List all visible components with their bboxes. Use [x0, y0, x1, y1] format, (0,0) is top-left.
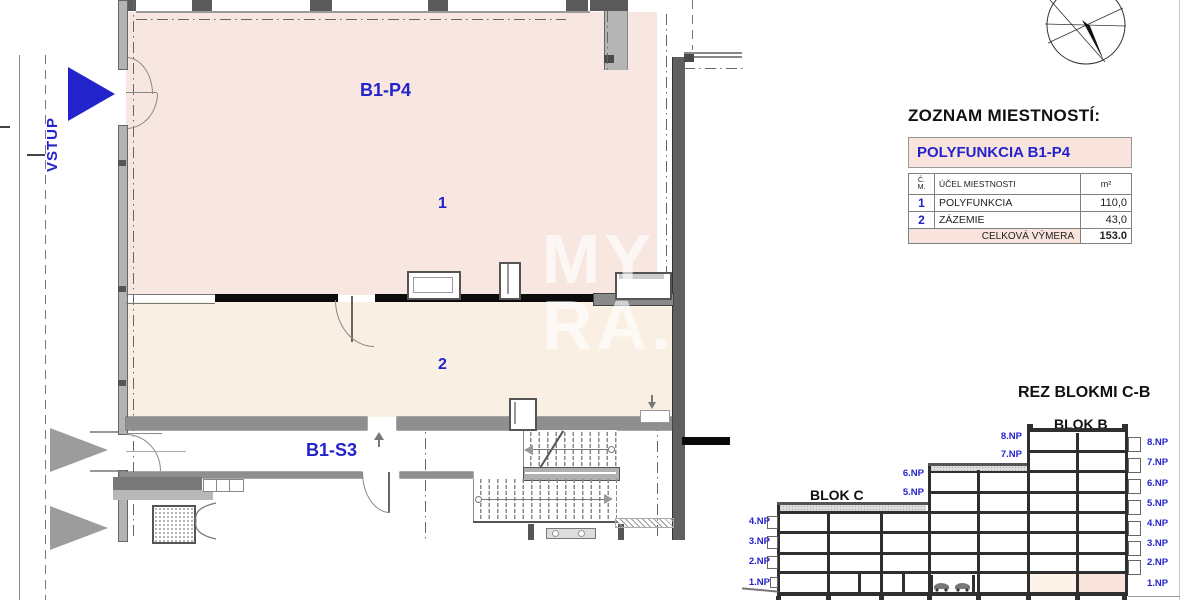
col-purpose: ÚČEL MIESTNOSTI: [935, 174, 1081, 195]
gray-arrow-icon: [50, 506, 108, 550]
highlight-unit-cell: [1079, 574, 1125, 592]
wall-stub: [604, 55, 614, 63]
direction-arrow-icon: [648, 402, 656, 409]
exterior-wall: [118, 125, 128, 435]
terrain-line: [1128, 596, 1180, 597]
entry-label: VSTUP: [44, 60, 61, 172]
footing: [826, 596, 831, 600]
stair-arrow-icon: [604, 494, 613, 504]
reference-tick: [27, 154, 45, 156]
row-purpose: POLYFUNKCIA: [935, 195, 1081, 212]
roof-blok-b: [1027, 428, 1128, 432]
floorplan-sheet: MY RA. VSTUP B1-P4: [0, 0, 1200, 600]
door-swing-arc: [362, 472, 390, 513]
stair-edge: [473, 521, 618, 523]
floor-label: 3.NP: [744, 536, 770, 547]
stair-landing-line: [525, 472, 616, 474]
table-total-row: CELKOVÁ VÝMERA 153.0: [909, 229, 1132, 244]
watermark-line2: RA.: [542, 292, 675, 358]
balcony: [1128, 458, 1141, 473]
floor-label: 2.NP: [1147, 557, 1168, 568]
axis-line: [136, 19, 566, 20]
room-list: ZOZNAM MIESTNOSTÍ: POLYFUNKCIA B1-P4 Č. …: [908, 106, 1132, 244]
footing: [1122, 596, 1127, 600]
wall-mass: [113, 477, 202, 490]
wall-stub: [684, 54, 694, 62]
footing: [927, 596, 932, 600]
interior-wall: [397, 417, 509, 430]
axis-line: [607, 11, 608, 70]
stair-walkline: [478, 499, 608, 500]
elevator-detail: [578, 530, 585, 537]
row-no: 2: [909, 212, 935, 229]
axis-line: [692, 0, 693, 50]
interior-wall: [215, 294, 338, 302]
balcony: [1128, 541, 1141, 556]
corner-wall: [590, 0, 628, 11]
footing: [879, 596, 884, 600]
floor-label: 8.NP: [996, 431, 1022, 442]
floor-label: 5.NP: [898, 487, 924, 498]
col-no-1: Č.: [910, 177, 933, 185]
floor-label: 5.NP: [1147, 498, 1168, 509]
col-area: m²: [1081, 174, 1132, 195]
glass-facade-line: [136, 11, 590, 13]
door-swing-arc: [126, 434, 161, 471]
door-frame-fixture: [499, 262, 521, 300]
column: [192, 0, 212, 11]
balcony: [1128, 437, 1141, 452]
footing: [1075, 596, 1080, 600]
direction-arrow-stem: [651, 395, 653, 402]
reference-line: [19, 55, 20, 600]
shaft-cell: [229, 479, 244, 492]
stair-walkline: [527, 449, 613, 450]
wall-tick: [118, 380, 126, 386]
floor-label: 7.NP: [1147, 457, 1168, 468]
floor-label: 1.NP: [744, 577, 770, 588]
blok-c-label: BLOK C: [810, 487, 864, 503]
row-no: 1: [909, 195, 935, 212]
room-unit-label: B1-P4: [360, 80, 411, 101]
watermark-line1: MY: [542, 226, 675, 292]
gray-arrow-icon: [50, 428, 108, 472]
room-1-number: 1: [438, 195, 447, 213]
section-column: [1076, 433, 1079, 596]
interior-wall: [400, 472, 473, 478]
column: [310, 0, 332, 11]
floor-label: 4.NP: [744, 516, 770, 527]
footing: [976, 596, 981, 600]
door-frame-leaf: [507, 264, 509, 294]
car-icon: [954, 581, 971, 592]
roof-band: [779, 505, 926, 511]
total-value: 153.0: [1081, 229, 1132, 244]
floor-label: 1.NP: [1147, 578, 1168, 589]
table-row: 1 POLYFUNKCIA 110,0: [909, 195, 1132, 212]
glazed-partition: [126, 294, 215, 304]
section-column: [880, 511, 883, 596]
wall-tick: [118, 286, 126, 292]
column: [566, 0, 588, 11]
footing: [776, 596, 781, 600]
floor-label: 8.NP: [1147, 437, 1168, 448]
floor-label: 6.NP: [898, 468, 924, 479]
row-area: 43,0: [1081, 212, 1132, 229]
column: [428, 0, 448, 11]
row-area: 110,0: [1081, 195, 1132, 212]
section-column: [827, 511, 830, 596]
direction-arrow-stem: [378, 439, 380, 447]
footing: [1026, 596, 1031, 600]
balcony: [1128, 500, 1141, 515]
highlight-unit-cell: [1030, 574, 1076, 592]
balcony: [1128, 560, 1141, 575]
section-column: [1027, 428, 1030, 596]
interior-wall: [126, 417, 367, 430]
walkline-start: [475, 496, 482, 503]
reference-tick: [0, 126, 10, 128]
entry-arrow-icon: [68, 67, 115, 121]
table-row: 2 ZÁZEMIE 43,0: [909, 212, 1132, 229]
door-line: [126, 451, 186, 452]
room-list-title: ZOZNAM MIESTNOSTÍ:: [908, 106, 1132, 126]
elevator-detail: [552, 530, 559, 537]
floor-label: 4.NP: [1147, 518, 1168, 529]
double-door-swing-arcs: [190, 498, 220, 544]
door-frame-leaf: [514, 402, 516, 424]
hatched-strip: [615, 518, 674, 528]
room-table: Č. M. ÚČEL MIESTNOSTI m² 1 POLYFUNKCIA 1…: [908, 173, 1132, 244]
terrain-line: [742, 587, 778, 592]
wall-1np: [858, 574, 861, 592]
wall-tick: [118, 160, 126, 166]
stair-arrow-icon: [524, 445, 533, 455]
garage-jamb: [972, 575, 975, 592]
col-no-2: M.: [910, 184, 933, 192]
axis-line: [684, 68, 745, 69]
section-title: REZ BLOKMI C-B: [1018, 384, 1150, 402]
door-leaf: [126, 92, 157, 93]
watermark: MY RA.: [542, 226, 675, 358]
section-column: [977, 470, 980, 596]
floor-label: 3.NP: [1147, 538, 1168, 549]
balcony: [1128, 479, 1141, 494]
balcony: [770, 577, 778, 588]
sheet-frame-line: [1179, 0, 1180, 600]
room-2-number: 2: [438, 356, 447, 374]
basement-corridor-label: B1-S3: [306, 440, 357, 461]
floor-label: 2.NP: [744, 556, 770, 567]
door-leaf: [126, 433, 162, 434]
room-list-header: POLYFUNKCIA B1-P4: [908, 137, 1132, 168]
floor-label: 6.NP: [1147, 478, 1168, 489]
car-icon: [933, 581, 950, 592]
north-compass-icon: [1040, 0, 1140, 70]
floor-label: 7.NP: [996, 449, 1022, 460]
window-fixture-inner: [413, 277, 453, 293]
total-label: CELKOVÁ VÝMERA: [909, 229, 1081, 244]
wall-1np: [902, 574, 905, 592]
axis-line: [425, 417, 426, 540]
row-purpose: ZÁZEMIE: [935, 212, 1081, 229]
table-header-row: Č. M. ÚČEL MIESTNOSTI m²: [909, 174, 1132, 195]
balcony: [1128, 521, 1141, 536]
stair-edge: [473, 479, 474, 521]
floor-outline: [640, 410, 670, 423]
walkline-start: [608, 446, 615, 453]
section-cut-mark: [682, 437, 730, 445]
